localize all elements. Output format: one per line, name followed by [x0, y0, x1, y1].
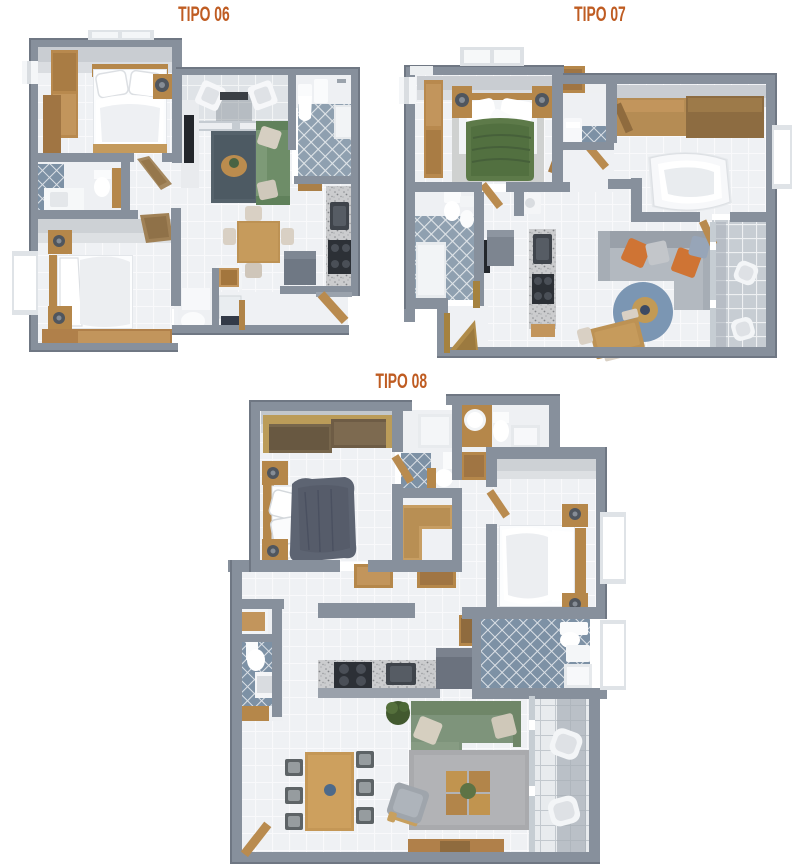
- svg-text:TIPO 06: TIPO 06: [178, 2, 230, 26]
- svg-text:TIPO 07: TIPO 07: [574, 2, 626, 26]
- svg-text:TIPO 08: TIPO 08: [375, 369, 427, 393]
